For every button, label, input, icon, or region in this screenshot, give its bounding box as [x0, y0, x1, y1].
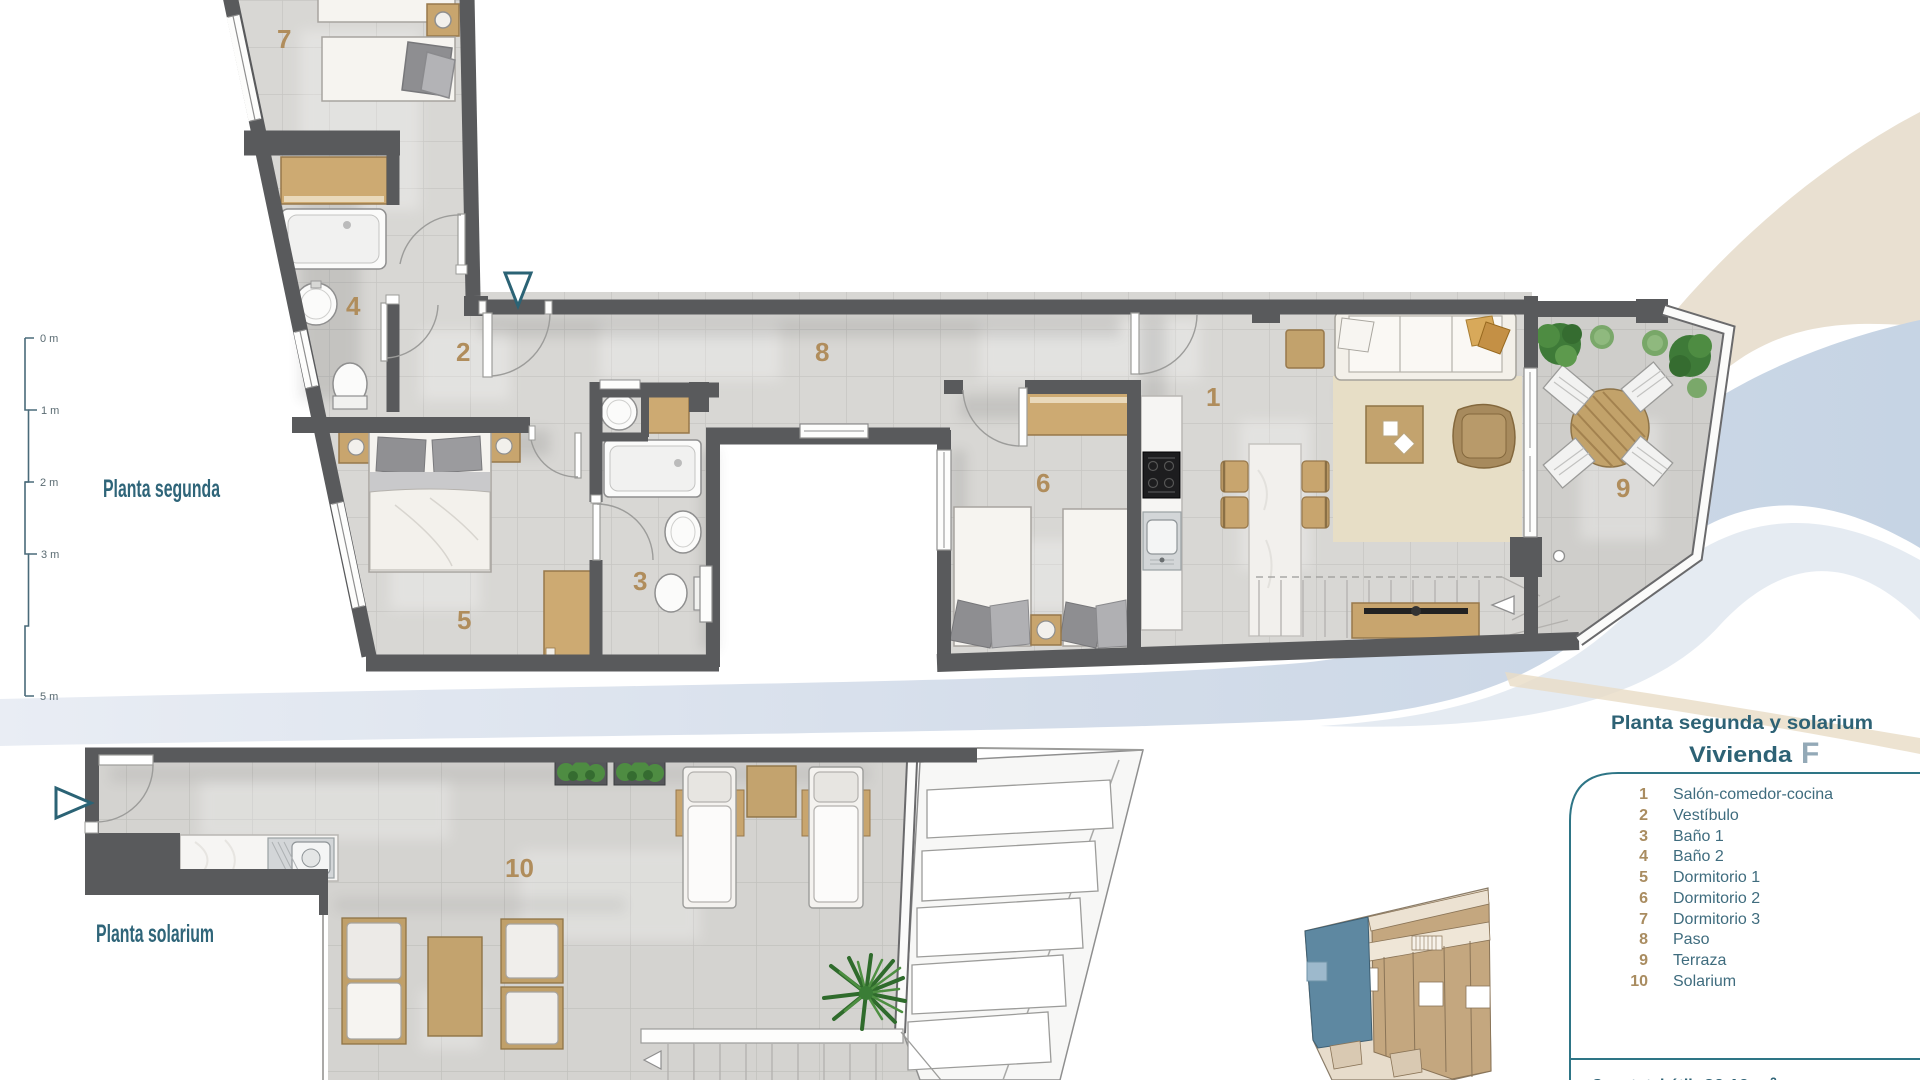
svg-text:4: 4 — [346, 291, 361, 321]
svg-text:3 m: 3 m — [41, 549, 59, 561]
svg-text:8: 8 — [815, 337, 829, 367]
svg-text:Baño 2: Baño 2 — [1673, 848, 1724, 865]
svg-text:Dormitorio 1: Dormitorio 1 — [1673, 869, 1760, 886]
svg-text:Vivienda: Vivienda — [1689, 742, 1793, 767]
svg-text:1 m: 1 m — [41, 405, 59, 417]
svg-text:Salón-comedor-cocina: Salón-comedor-cocina — [1673, 786, 1833, 803]
svg-text:2: 2 — [456, 337, 470, 367]
svg-text:Sup. total útil:: Sup. total útil: — [1592, 1076, 1698, 1080]
svg-text:10: 10 — [1630, 973, 1648, 990]
svg-text:Dormitorio 3: Dormitorio 3 — [1673, 911, 1760, 928]
svg-text:1: 1 — [1206, 382, 1220, 412]
svg-text:6: 6 — [1639, 890, 1648, 907]
svg-text:7: 7 — [277, 24, 291, 54]
svg-text:7: 7 — [1639, 911, 1648, 928]
svg-text:9: 9 — [1616, 473, 1630, 503]
svg-text:3: 3 — [633, 566, 647, 596]
svg-text:10: 10 — [505, 853, 534, 883]
svg-text:8: 8 — [1639, 931, 1648, 948]
svg-text:6: 6 — [1036, 468, 1050, 498]
svg-text:5: 5 — [1639, 869, 1648, 886]
svg-text:5 m: 5 m — [40, 691, 58, 703]
svg-text:1: 1 — [1639, 786, 1648, 803]
svg-text:5: 5 — [457, 605, 471, 635]
svg-text:82,19 m2: 82,19 m2 — [1704, 1075, 1777, 1080]
svg-text:F: F — [1801, 737, 1819, 770]
svg-text:9: 9 — [1639, 952, 1648, 969]
svg-text:Planta solarium: Planta solarium — [96, 920, 214, 948]
svg-text:Baño 1: Baño 1 — [1673, 828, 1724, 845]
svg-text:4: 4 — [1639, 848, 1648, 865]
svg-text:2: 2 — [1639, 807, 1648, 824]
svg-text:Dormitorio 2: Dormitorio 2 — [1673, 890, 1760, 907]
svg-text:Vestíbulo: Vestíbulo — [1673, 807, 1739, 824]
svg-text:Planta segunda y solarium: Planta segunda y solarium — [1611, 713, 1873, 734]
svg-text:Paso: Paso — [1673, 931, 1710, 948]
svg-text:Solarium: Solarium — [1673, 973, 1736, 990]
svg-text:3: 3 — [1639, 828, 1648, 845]
svg-text:Planta segunda: Planta segunda — [103, 475, 221, 503]
svg-text:2 m: 2 m — [40, 477, 58, 489]
svg-text:0 m: 0 m — [40, 333, 58, 345]
svg-text:Terraza: Terraza — [1673, 952, 1726, 969]
